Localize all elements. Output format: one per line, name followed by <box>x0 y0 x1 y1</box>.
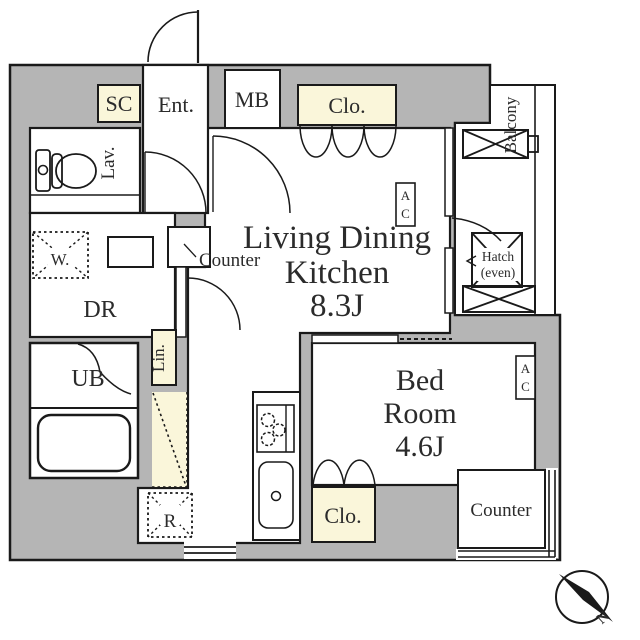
ac-unit-bedroom: A C <box>516 356 535 399</box>
kitchen-window <box>184 541 236 559</box>
closet-ldk-label: Clo. <box>328 93 365 118</box>
unit-bath-label: UB <box>71 366 104 392</box>
window-ldk-balcony-upper <box>445 128 453 216</box>
closet-bedroom-label: Clo. <box>324 503 361 528</box>
hatch-label-line1: Hatch <box>482 249 514 264</box>
kitchen-unit <box>253 392 300 540</box>
linen-label: Lin. <box>149 344 168 372</box>
wall-dr-ldk <box>176 267 186 337</box>
ldk-label-line2: Kitchen <box>285 255 389 291</box>
washer-label: W. <box>51 250 70 269</box>
shoe-closet-label: SC <box>106 91 133 116</box>
ac-ldk-letter-a: A <box>401 188 411 203</box>
entrance-hall-floor <box>143 65 208 213</box>
bedroom-label-line3: 4.6J <box>395 430 445 463</box>
ac-ldk-letter-c: C <box>401 206 410 221</box>
window-ldk-balcony-lower <box>445 248 453 313</box>
entrance-label: Ent. <box>158 92 194 117</box>
ldk-label-line1: Living Dining <box>243 220 431 256</box>
ldk-label-line3: 8.3J <box>310 288 364 324</box>
hatch-label-line2: (even) <box>481 265 515 280</box>
balcony-label: Balcony <box>501 96 520 153</box>
fridge-label: R <box>164 511 177 532</box>
ac-bedroom-letter-a: A <box>521 361 531 376</box>
entrance-door <box>148 10 198 63</box>
bedroom-label-line1: Bed <box>396 364 444 397</box>
vanity-box <box>108 237 153 267</box>
meter-box-label: MB <box>235 87 269 112</box>
ac-bedroom-letter-c: C <box>521 379 530 394</box>
lavatory-floor <box>30 128 140 213</box>
wall-ldk-bedroom <box>312 335 398 343</box>
bedroom-label-line2: Room <box>383 397 456 430</box>
storage-nook <box>152 392 187 487</box>
floorplan-drawing: Hatch (even) Balcony <box>0 0 640 640</box>
compass: N <box>556 571 613 628</box>
floorplan-page: Hatch (even) Balcony <box>0 0 640 640</box>
dressing-room-label: DR <box>83 297 116 323</box>
bay-counter-label: Counter <box>470 500 532 521</box>
lavatory-label: Lav. <box>98 146 119 179</box>
unit-bath-floor <box>30 343 138 478</box>
